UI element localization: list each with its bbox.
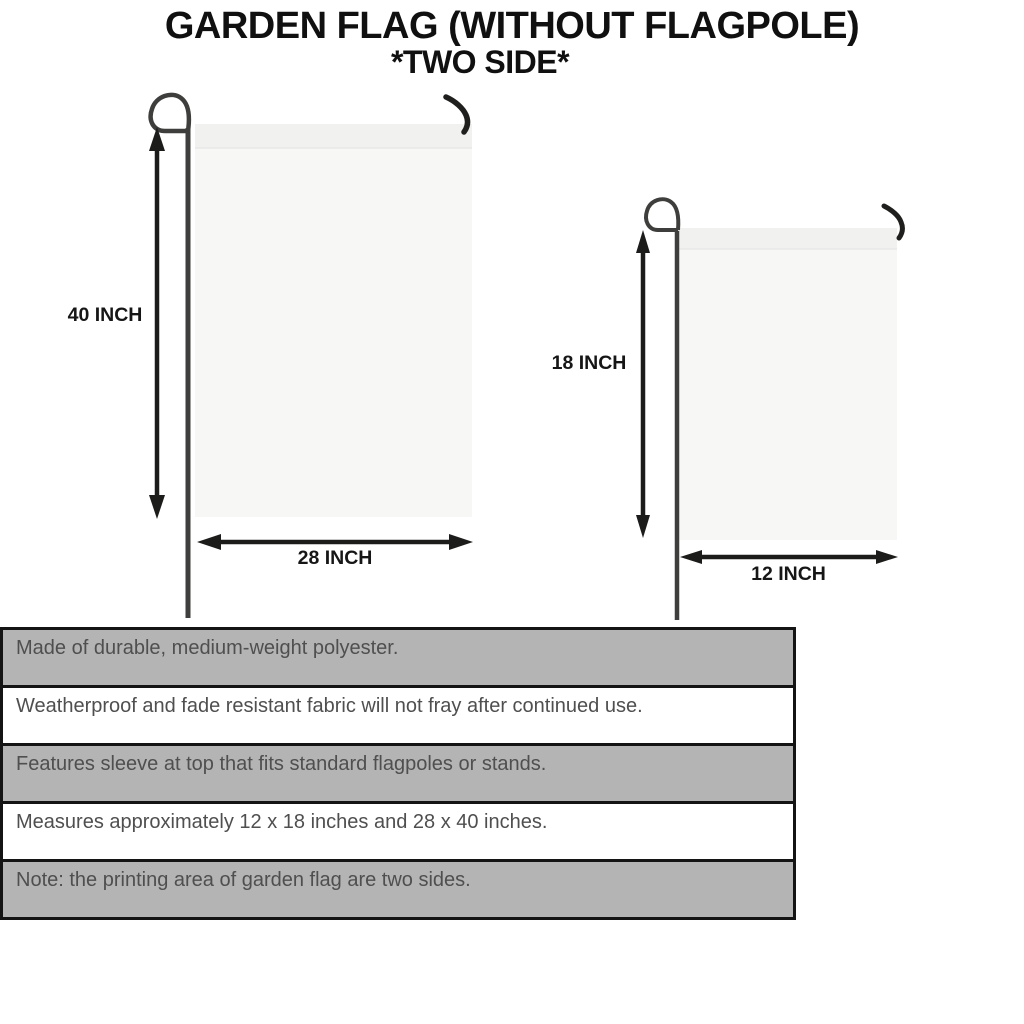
feature-row: Measures approximately 12 x 18 inches an… (3, 801, 793, 859)
small-flag-width-arrow (680, 550, 898, 564)
large-flagpole-loop-icon (151, 95, 189, 131)
small-flag-fabric (678, 228, 897, 540)
feature-row: Weatherproof and fade resistant fabric w… (3, 685, 793, 743)
small-flag-height-label: 18 INCH (547, 352, 631, 375)
large-flag-diagram (149, 95, 473, 618)
feature-table: Made of durable, medium-weight polyester… (0, 627, 796, 920)
feature-text: Features sleeve at top that fits standar… (16, 753, 546, 775)
feature-row: Made of durable, medium-weight polyester… (3, 630, 793, 685)
feature-text: Weatherproof and fade resistant fabric w… (16, 695, 643, 717)
small-flagpole-loop-icon (646, 199, 678, 230)
small-flag-height-arrow (636, 230, 650, 538)
garden-flag-product-diagram: GARDEN FLAG (WITHOUT FLAGPOLE) *TWO SIDE… (0, 0, 1024, 1024)
small-flag-sleeve (678, 228, 897, 249)
feature-text: Measures approximately 12 x 18 inches an… (16, 811, 547, 833)
small-flag-width-label: 12 INCH (679, 563, 898, 586)
large-flag-sleeve (195, 124, 472, 148)
feature-text: Note: the printing area of garden flag a… (16, 869, 471, 891)
feature-row: Note: the printing area of garden flag a… (3, 859, 793, 917)
feature-text: Made of durable, medium-weight polyester… (16, 637, 398, 659)
large-flag-height-label: 40 INCH (62, 304, 148, 327)
large-flag-height-arrow (149, 127, 165, 519)
feature-row: Features sleeve at top that fits standar… (3, 743, 793, 801)
small-flag-diagram (636, 199, 902, 620)
large-flag-fabric (195, 124, 472, 517)
large-flag-width-label: 28 INCH (197, 547, 473, 570)
